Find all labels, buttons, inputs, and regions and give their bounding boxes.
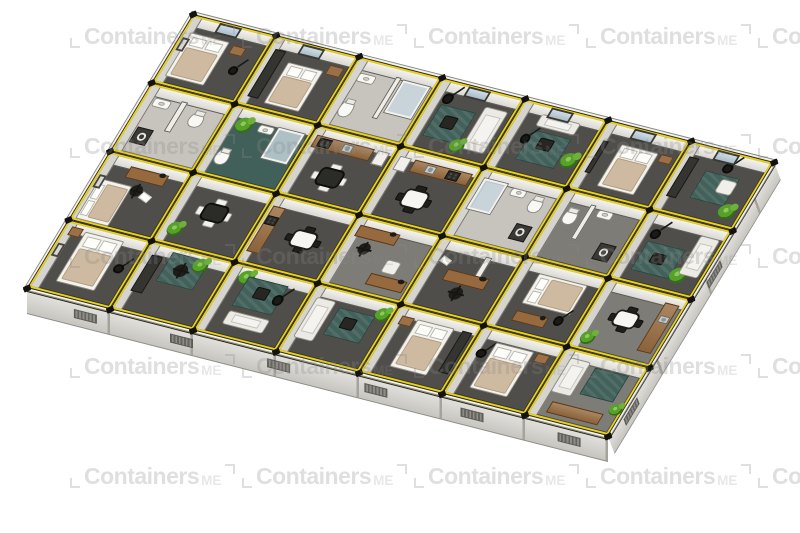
furniture-fridge — [370, 151, 390, 168]
furniture-dining — [279, 223, 327, 256]
furniture-officechair — [355, 242, 373, 256]
vent-grille — [170, 333, 193, 348]
furniture-officechair — [447, 286, 466, 301]
furniture-desk — [124, 167, 169, 188]
furniture-lamp — [440, 93, 456, 105]
furniture-desk — [354, 225, 400, 246]
furniture-sink — [256, 124, 275, 135]
furniture-lamp — [551, 315, 566, 326]
furniture-nightstand — [67, 227, 84, 238]
furniture-paper — [439, 255, 452, 266]
furniture-plant — [577, 329, 599, 346]
furniture-shower — [466, 178, 507, 214]
furniture-nightstand — [228, 45, 247, 57]
window — [297, 44, 326, 60]
furniture-toilet — [524, 196, 546, 214]
furniture-lamp — [111, 263, 126, 274]
furniture-bed — [75, 178, 132, 226]
furniture-cabinet — [325, 65, 345, 78]
picture-frame — [51, 242, 66, 257]
furniture-toilet — [211, 147, 233, 165]
furniture-toilet — [559, 208, 581, 226]
furniture-plant — [163, 220, 186, 237]
furniture-bed — [522, 273, 588, 315]
furniture-desk — [511, 310, 549, 328]
floorplan-scene: ContainersMEContainersMEContainersMECont… — [0, 0, 800, 533]
furniture-nightstand — [532, 353, 549, 364]
furniture-washer — [508, 223, 533, 242]
window — [463, 86, 492, 102]
vent-grille — [558, 432, 581, 447]
vent-grille — [461, 407, 484, 422]
furniture-sink — [356, 73, 378, 85]
furniture-nightstand — [398, 316, 415, 327]
furniture-counter — [408, 160, 473, 186]
furniture-desk — [365, 273, 408, 293]
furniture-lamp — [226, 65, 241, 76]
furniture-dining — [190, 196, 239, 230]
window — [629, 129, 658, 145]
furniture-washer — [591, 243, 616, 263]
furniture-plant — [232, 116, 256, 134]
furniture-sink — [509, 187, 528, 198]
furniture-sink — [151, 98, 173, 110]
furniture-bed — [165, 33, 230, 87]
furniture-dining — [305, 160, 354, 194]
furniture-nightstand — [657, 154, 674, 165]
furniture-chairw — [380, 260, 402, 276]
corner-clamp-icon — [770, 158, 779, 166]
furniture-lamp — [648, 228, 664, 240]
furniture-toilet — [335, 99, 358, 119]
furniture-dining — [603, 304, 649, 335]
furniture-bed — [596, 144, 658, 196]
window — [214, 23, 243, 39]
container-building — [0, 0, 800, 533]
furniture-paper — [138, 191, 152, 203]
furniture-rug — [580, 368, 629, 402]
furniture-sink — [595, 209, 614, 220]
vent-grille — [73, 308, 96, 323]
furniture-dining — [390, 182, 439, 216]
furniture-counter — [546, 401, 604, 425]
furniture-bed — [56, 232, 124, 291]
furniture-plant — [714, 203, 738, 221]
vent-grille — [364, 382, 387, 397]
vent-grille — [267, 358, 290, 373]
furniture-washer — [129, 127, 154, 147]
furniture-toilet — [185, 111, 208, 130]
